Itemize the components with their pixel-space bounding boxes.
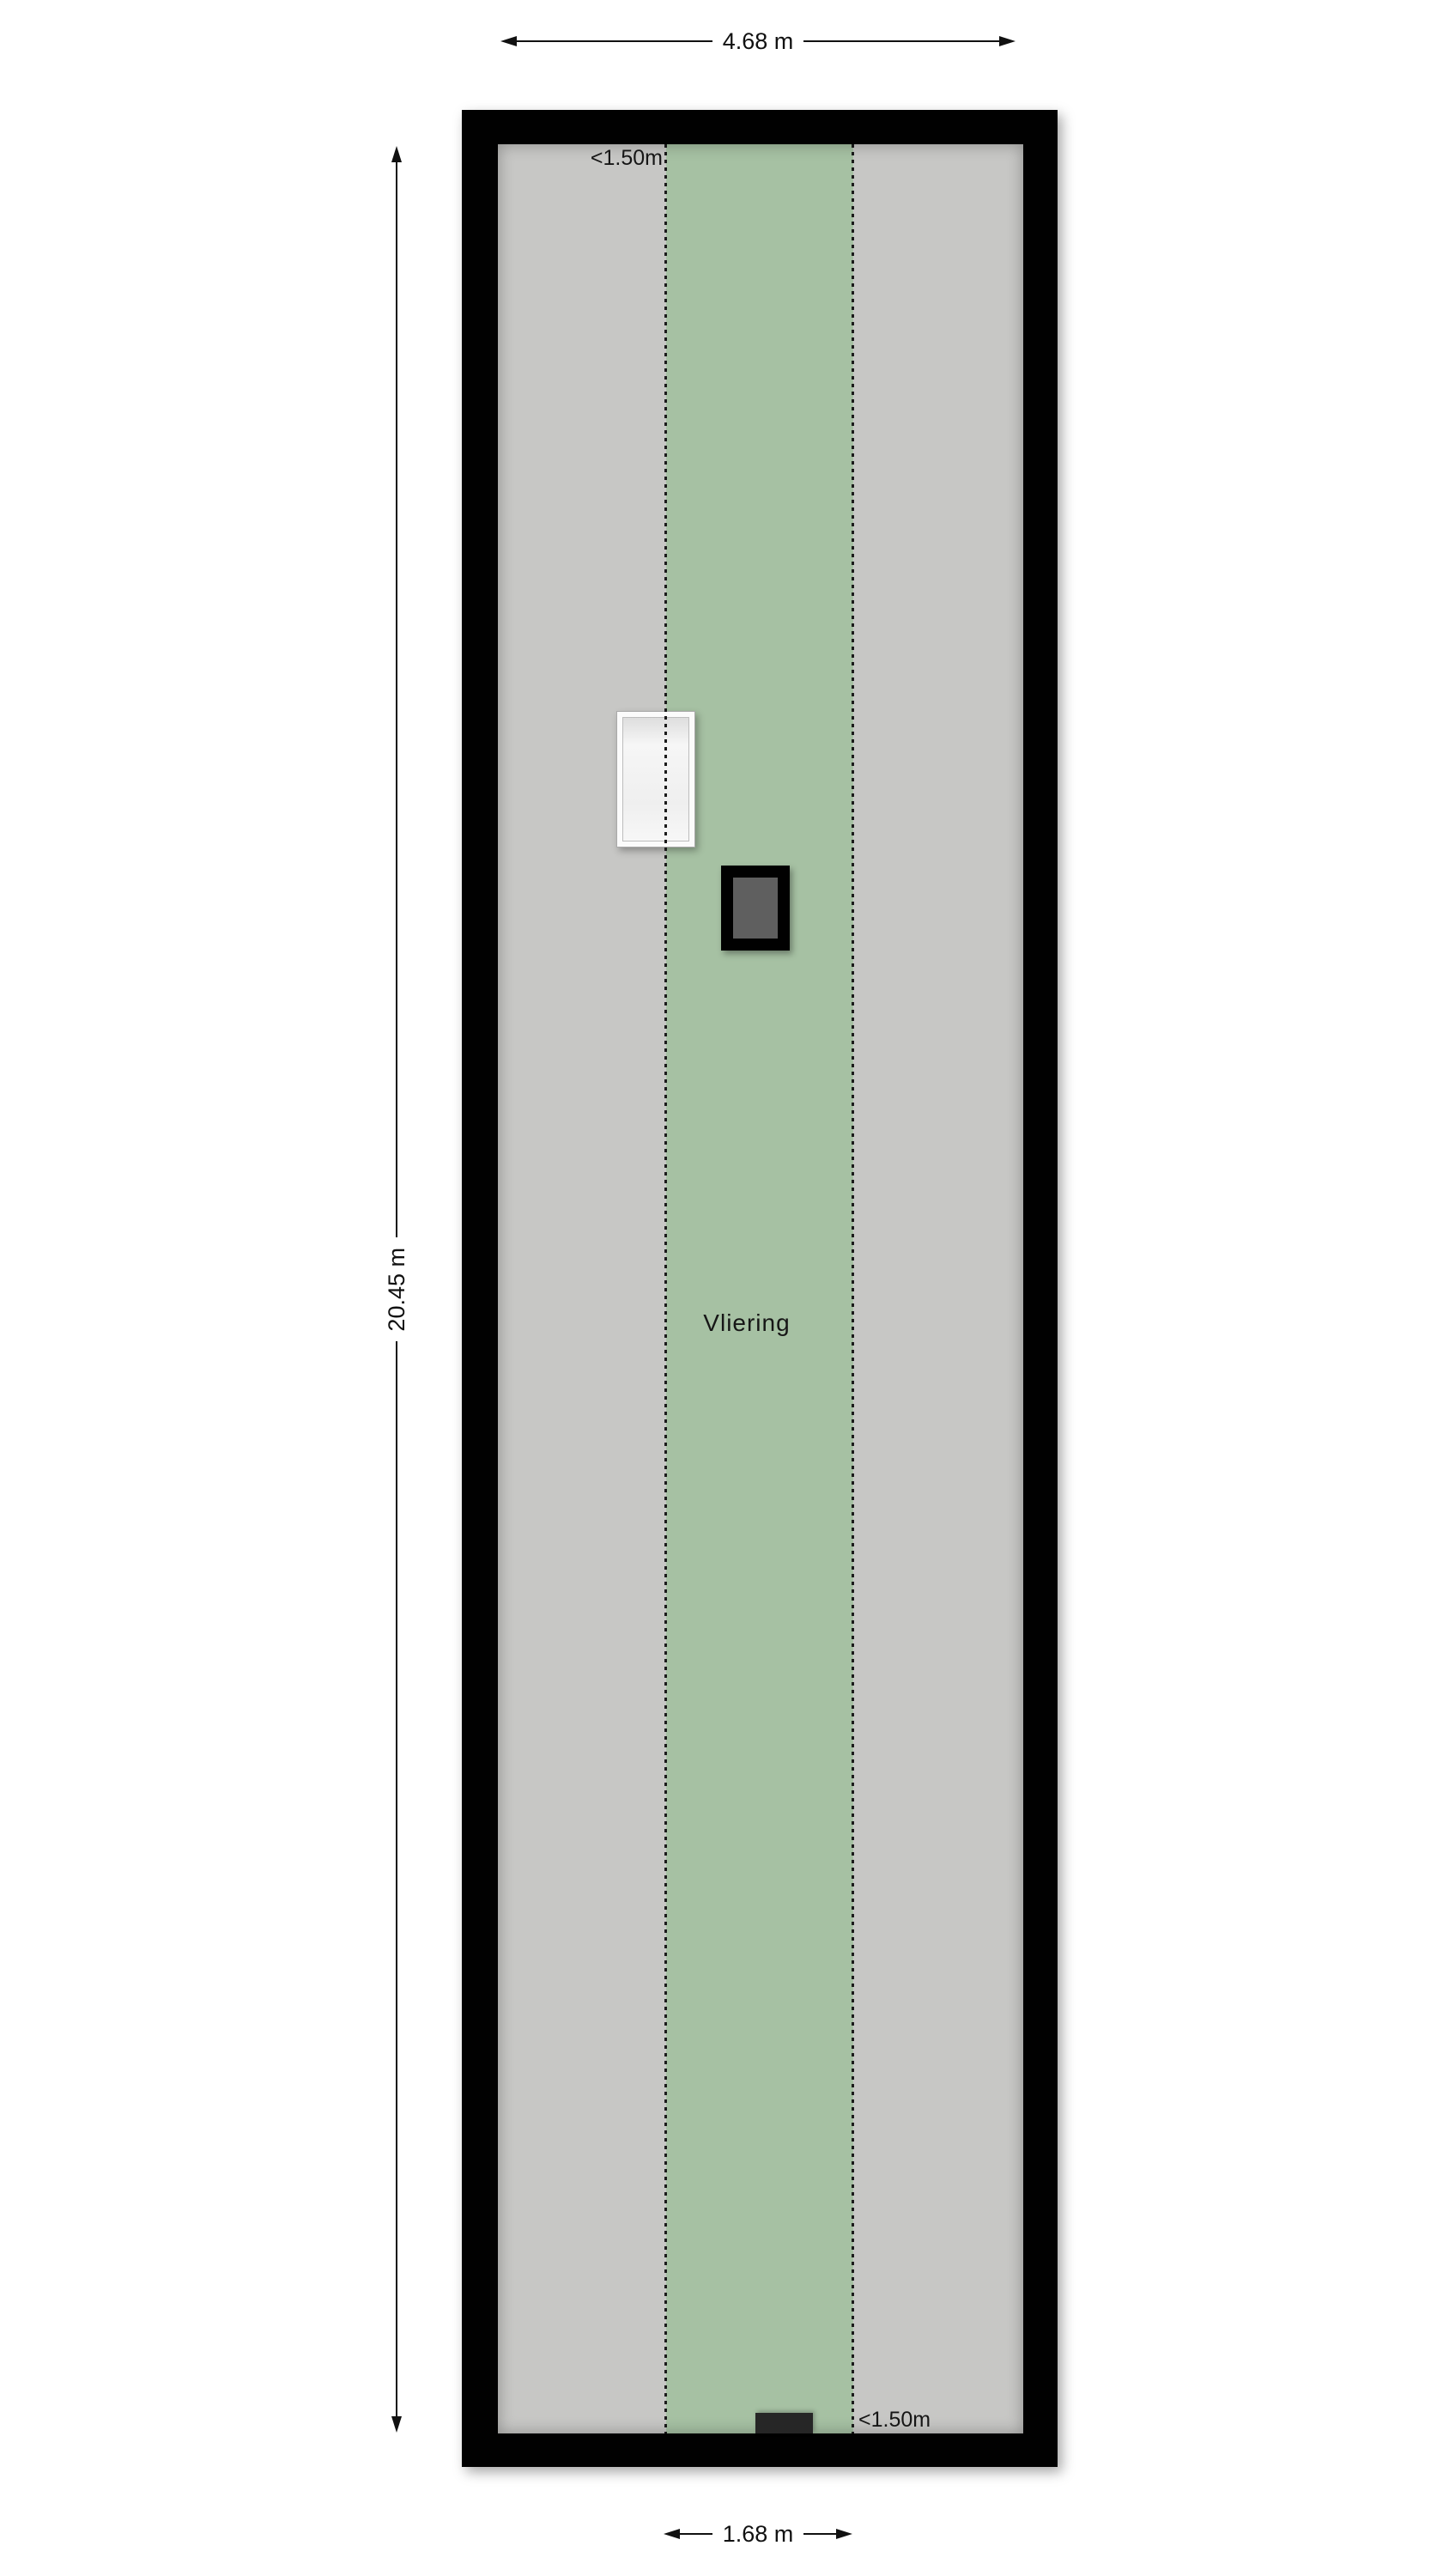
dimension-line	[803, 40, 999, 42]
room-label: Vliering	[661, 1309, 833, 1338]
arrowhead-up-icon	[391, 146, 402, 162]
arrowhead-left-icon	[500, 36, 517, 46]
dimension-height-label: 20.45 m	[384, 1237, 410, 1342]
roof-window	[616, 711, 695, 848]
roof-window-pane	[622, 717, 689, 841]
chimney-core	[733, 878, 778, 939]
chimney	[721, 866, 790, 951]
arrowhead-right-icon	[999, 36, 1016, 46]
dimension-line	[680, 2533, 712, 2535]
dimension-width-label: 4.68 m	[712, 28, 804, 55]
dimension-zone-width: 1.68 m	[664, 2518, 852, 2549]
arrowhead-right-icon	[836, 2529, 852, 2539]
arrowhead-left-icon	[664, 2529, 680, 2539]
low-headroom-label-bottom: <1.50m	[858, 2407, 1030, 2433]
dimension-line	[396, 162, 397, 1237]
headroom-zone	[666, 144, 853, 2433]
dimension-zone-width-label: 1.68 m	[712, 2521, 804, 2548]
zone-boundary-left	[664, 144, 667, 2433]
arrowhead-down-icon	[391, 2416, 402, 2433]
floorplan-canvas: 4.68 m 20.45 m <1.50m <1.50m Vliering 1.…	[0, 0, 1449, 2576]
dimension-line	[396, 1341, 397, 2416]
dimension-line	[517, 40, 712, 42]
dimension-height: 20.45 m	[381, 146, 412, 2433]
floor-hatch	[755, 2413, 813, 2433]
low-headroom-label-top: <1.50m	[481, 145, 663, 171]
zone-boundary-right	[852, 144, 854, 2433]
dimension-width: 4.68 m	[500, 26, 1016, 57]
dimension-line	[803, 2533, 836, 2535]
